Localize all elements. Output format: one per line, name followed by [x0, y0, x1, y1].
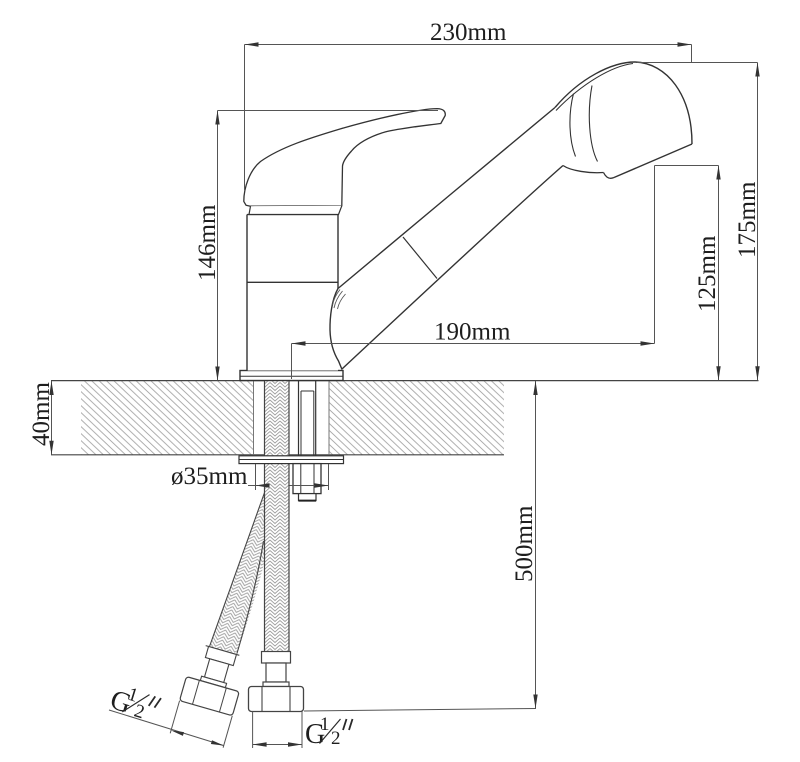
- svg-text:146mm: 146mm: [194, 204, 221, 281]
- svg-text:2: 2: [331, 728, 341, 749]
- svg-text:40mm: 40mm: [28, 382, 55, 446]
- svg-text:ø35mm: ø35mm: [171, 463, 248, 490]
- svg-text:125mm: 125mm: [694, 235, 721, 312]
- svg-text:500mm: 500mm: [511, 505, 538, 582]
- svg-text:190mm: 190mm: [434, 319, 511, 346]
- svg-text:230mm: 230mm: [430, 19, 507, 46]
- svg-text:175mm: 175mm: [734, 181, 761, 258]
- svg-text:1: 1: [320, 714, 330, 735]
